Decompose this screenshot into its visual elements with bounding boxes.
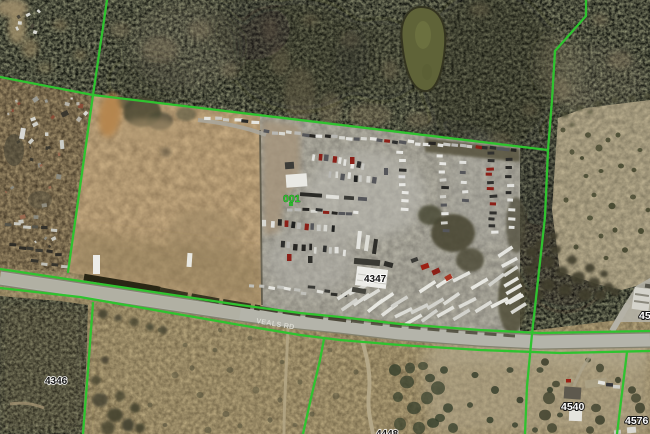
svg-text:4576: 4576 bbox=[625, 415, 649, 427]
svg-text:001: 001 bbox=[283, 193, 301, 205]
svg-text:4346: 4346 bbox=[45, 376, 68, 387]
svg-text:4540: 4540 bbox=[561, 401, 585, 413]
svg-text:4347: 4347 bbox=[364, 274, 387, 285]
svg-text:4448: 4448 bbox=[376, 429, 399, 434]
svg-text:4575: 4575 bbox=[639, 310, 650, 322]
